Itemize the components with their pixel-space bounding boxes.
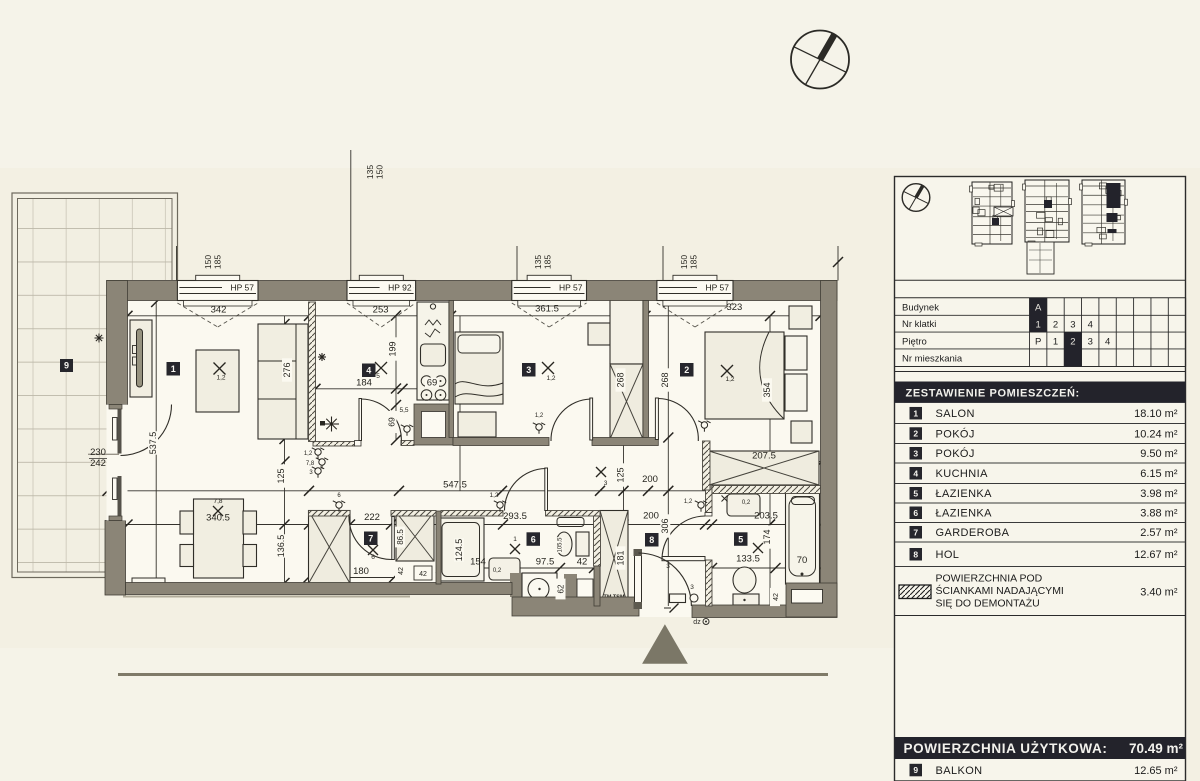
svg-text:2: 2 bbox=[913, 429, 918, 439]
svg-text:dz: dz bbox=[693, 619, 701, 626]
svg-text:306: 306 bbox=[660, 518, 670, 533]
svg-text:Piętro: Piętro bbox=[902, 336, 927, 347]
svg-text:3.98 m²: 3.98 m² bbox=[1140, 488, 1178, 500]
svg-text:181: 181 bbox=[615, 550, 625, 565]
svg-text:342: 342 bbox=[211, 305, 227, 316]
svg-text:340.5: 340.5 bbox=[206, 513, 230, 524]
svg-text:3: 3 bbox=[1070, 319, 1075, 330]
svg-text:135: 135 bbox=[365, 165, 375, 179]
svg-text:42: 42 bbox=[773, 593, 780, 601]
svg-text:1: 1 bbox=[1036, 319, 1041, 330]
svg-text:8: 8 bbox=[649, 535, 654, 545]
svg-text:1: 1 bbox=[171, 364, 176, 374]
svg-text:9: 9 bbox=[913, 765, 918, 775]
svg-text:7: 7 bbox=[913, 527, 918, 537]
svg-text:7,8: 7,8 bbox=[213, 498, 222, 505]
svg-text:4: 4 bbox=[1088, 319, 1093, 330]
svg-text:6.15 m²: 6.15 m² bbox=[1140, 468, 1178, 480]
svg-text:222: 222 bbox=[364, 512, 380, 523]
svg-text:70: 70 bbox=[797, 555, 808, 566]
svg-text:174: 174 bbox=[762, 529, 772, 544]
svg-text:12.65 m²: 12.65 m² bbox=[1134, 765, 1178, 777]
svg-text:136.5: 136.5 bbox=[276, 535, 286, 558]
svg-text:253: 253 bbox=[373, 305, 389, 316]
svg-text:242: 242 bbox=[90, 458, 106, 469]
svg-text:P: P bbox=[1035, 336, 1041, 347]
svg-text:A: A bbox=[1035, 303, 1042, 314]
svg-text:354: 354 bbox=[762, 382, 772, 397]
svg-text:10.24 m²: 10.24 m² bbox=[1134, 428, 1178, 440]
svg-text:3: 3 bbox=[1088, 336, 1093, 347]
svg-text:2: 2 bbox=[684, 365, 689, 375]
svg-text:POKÓJ: POKÓJ bbox=[936, 447, 975, 460]
svg-text:1,2: 1,2 bbox=[304, 451, 313, 457]
svg-text:268: 268 bbox=[615, 372, 625, 387]
svg-text:199: 199 bbox=[387, 341, 397, 356]
svg-text:86.5: 86.5 bbox=[396, 529, 405, 545]
svg-text:4: 4 bbox=[913, 468, 918, 478]
svg-text:GARDEROBA: GARDEROBA bbox=[936, 527, 1010, 539]
svg-text:HP 92: HP 92 bbox=[388, 283, 412, 293]
svg-text:185: 185 bbox=[543, 255, 553, 269]
svg-text:1,2: 1,2 bbox=[535, 413, 544, 419]
svg-text:4: 4 bbox=[1105, 336, 1110, 347]
svg-text:1: 1 bbox=[913, 408, 918, 418]
svg-text:69: 69 bbox=[427, 378, 438, 389]
svg-text:4: 4 bbox=[366, 365, 371, 375]
svg-text:62: 62 bbox=[556, 584, 565, 593]
svg-text:7: 7 bbox=[368, 533, 373, 543]
svg-text:42: 42 bbox=[577, 557, 588, 568]
svg-text:Nr klatki: Nr klatki bbox=[902, 319, 936, 330]
svg-text:97.5: 97.5 bbox=[536, 557, 555, 568]
svg-text:203.5: 203.5 bbox=[754, 511, 778, 522]
svg-text:12.67 m²: 12.67 m² bbox=[1134, 549, 1178, 561]
svg-text:0,2: 0,2 bbox=[742, 500, 751, 506]
svg-text:2: 2 bbox=[1053, 319, 1058, 330]
svg-text:5: 5 bbox=[376, 373, 380, 380]
svg-text:2: 2 bbox=[1070, 336, 1075, 347]
svg-text:SALON: SALON bbox=[936, 408, 975, 420]
svg-text:6: 6 bbox=[913, 508, 918, 518]
svg-text:230: 230 bbox=[90, 447, 106, 458]
svg-text:POWIERZCHNIA POD: POWIERZCHNIA POD bbox=[936, 573, 1043, 585]
svg-text:323: 323 bbox=[726, 302, 742, 313]
svg-text:1: 1 bbox=[513, 536, 517, 543]
svg-text:HP 57: HP 57 bbox=[559, 283, 583, 293]
svg-text:9: 9 bbox=[64, 361, 69, 371]
svg-text:ŁAZIENKA: ŁAZIENKA bbox=[936, 508, 993, 520]
svg-text:5: 5 bbox=[738, 534, 743, 544]
svg-text:180: 180 bbox=[353, 566, 369, 577]
svg-text:HP 57: HP 57 bbox=[231, 283, 255, 293]
svg-text:KUCHNIA: KUCHNIA bbox=[936, 468, 989, 480]
svg-text:537.5: 537.5 bbox=[148, 432, 158, 455]
svg-text:3: 3 bbox=[913, 448, 918, 458]
svg-text:150: 150 bbox=[375, 165, 385, 179]
svg-text:125: 125 bbox=[615, 467, 625, 482]
svg-text:18.10 m²: 18.10 m² bbox=[1134, 408, 1178, 420]
svg-text:125: 125 bbox=[276, 468, 286, 483]
svg-text:70.49 m²: 70.49 m² bbox=[1129, 741, 1184, 756]
svg-text:135: 135 bbox=[533, 255, 543, 269]
svg-text:124.5: 124.5 bbox=[454, 539, 464, 562]
svg-text:HOL: HOL bbox=[936, 549, 960, 561]
svg-text:42: 42 bbox=[398, 567, 405, 575]
svg-text:1,2: 1,2 bbox=[216, 375, 225, 382]
svg-text:185: 185 bbox=[213, 255, 223, 269]
svg-text:1,2: 1,2 bbox=[725, 376, 734, 383]
svg-text:0,2: 0,2 bbox=[493, 568, 502, 574]
svg-text:Budynek: Budynek bbox=[902, 302, 939, 313]
svg-text:6: 6 bbox=[531, 534, 536, 544]
svg-text:1,2: 1,2 bbox=[546, 375, 555, 382]
svg-text:1,2: 1,2 bbox=[489, 492, 498, 499]
svg-text:268: 268 bbox=[660, 372, 670, 387]
svg-text:7,8: 7,8 bbox=[306, 461, 315, 467]
svg-text:3: 3 bbox=[690, 584, 694, 591]
svg-text:SIĘ DO DEMONTAŻU: SIĘ DO DEMONTAŻU bbox=[936, 597, 1040, 610]
svg-text:185: 185 bbox=[689, 255, 699, 269]
svg-text:3: 3 bbox=[526, 365, 531, 375]
svg-text:361.5: 361.5 bbox=[535, 304, 559, 315]
svg-text:150: 150 bbox=[679, 255, 689, 269]
svg-text:200: 200 bbox=[643, 511, 659, 522]
svg-text:6: 6 bbox=[371, 554, 375, 561]
svg-text:200: 200 bbox=[642, 474, 658, 485]
svg-text:207.5: 207.5 bbox=[752, 451, 776, 462]
svg-text:9.50 m²: 9.50 m² bbox=[1140, 448, 1178, 460]
svg-text:3: 3 bbox=[666, 563, 670, 570]
svg-text:ŁAZIENKA: ŁAZIENKA bbox=[936, 488, 993, 500]
svg-text:184: 184 bbox=[356, 378, 372, 389]
svg-text:HP 57: HP 57 bbox=[706, 283, 730, 293]
svg-text:ZESTAWIENIE POMIESZCZEŃ:: ZESTAWIENIE POMIESZCZEŃ: bbox=[906, 386, 1080, 399]
svg-text:8: 8 bbox=[913, 549, 918, 559]
svg-text:3: 3 bbox=[604, 480, 608, 487]
svg-text:547.5: 547.5 bbox=[443, 480, 467, 491]
svg-text:293.5: 293.5 bbox=[503, 511, 527, 522]
svg-text:ŚCIANKAMI NADAJĄCYMI: ŚCIANKAMI NADAJĄCYMI bbox=[936, 584, 1064, 597]
svg-text:5: 5 bbox=[913, 488, 918, 498]
svg-text:3.88 m²: 3.88 m² bbox=[1140, 508, 1178, 520]
svg-text:150: 150 bbox=[203, 255, 213, 269]
svg-text:154: 154 bbox=[470, 557, 486, 568]
svg-text:POKÓJ: POKÓJ bbox=[936, 427, 975, 440]
svg-text:3.40 m²: 3.40 m² bbox=[1140, 587, 1178, 599]
svg-text:133.5: 133.5 bbox=[736, 554, 760, 565]
svg-text:1,2: 1,2 bbox=[684, 499, 693, 505]
svg-text:POWIERZCHNIA UŻYTKOWA:: POWIERZCHNIA UŻYTKOWA: bbox=[904, 741, 1108, 756]
svg-text:5,5: 5,5 bbox=[399, 407, 408, 414]
svg-text:2.57 m²: 2.57 m² bbox=[1140, 527, 1178, 539]
svg-text:Nr mieszkania: Nr mieszkania bbox=[902, 353, 963, 364]
svg-text:105.5: 105.5 bbox=[557, 537, 563, 553]
svg-text:276: 276 bbox=[282, 362, 292, 377]
svg-text:BALKON: BALKON bbox=[936, 765, 983, 777]
svg-text:42: 42 bbox=[419, 571, 427, 578]
svg-text:69: 69 bbox=[386, 417, 396, 427]
svg-text:1: 1 bbox=[1053, 336, 1058, 347]
